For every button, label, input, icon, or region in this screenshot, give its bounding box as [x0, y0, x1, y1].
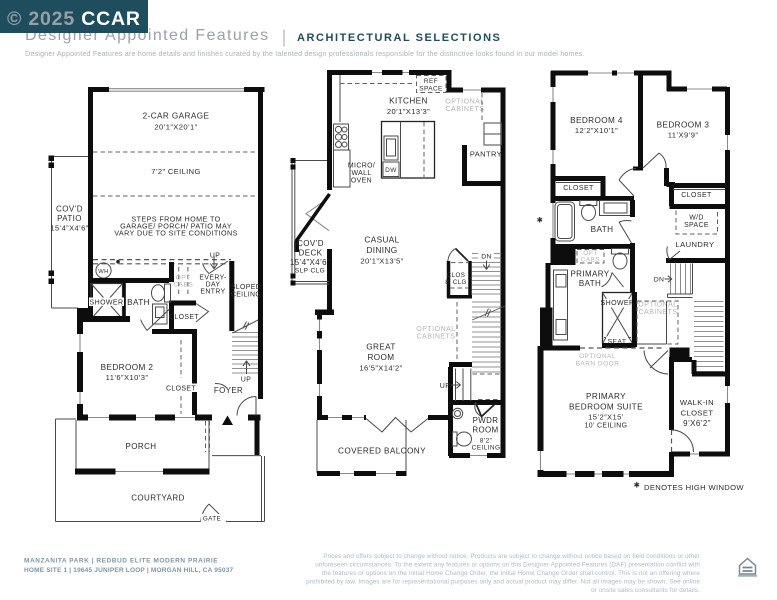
svg-text:8’2”: 8’2”	[480, 438, 492, 445]
svg-text:or onsite sales consultants fo: or onsite sales consultants for details.	[591, 587, 700, 594]
svg-text:DW: DW	[385, 167, 397, 174]
svg-text:DECK: DECK	[299, 249, 323, 258]
svg-text:16’5”X14’2”: 16’5”X14’2”	[359, 364, 402, 373]
svg-text:FOYER: FOYER	[214, 386, 243, 395]
svg-text:prohibited by law. Images are: prohibited by law. Images are for repres…	[306, 579, 700, 586]
svg-text:OPT: OPT	[176, 275, 191, 282]
svg-text:BEDROOM 2: BEDROOM 2	[101, 363, 154, 372]
svg-text:COVERED BALCONY: COVERED BALCONY	[338, 447, 426, 456]
svg-text:WH: WH	[98, 269, 108, 275]
svg-text:ARCHITECTURAL SELECTIONS: ARCHITECTURAL SELECTIONS	[297, 32, 501, 44]
svg-text:20’1”X13’3”: 20’1”X13’3”	[387, 107, 430, 116]
svg-text:BEDROOM 3: BEDROOM 3	[657, 121, 710, 130]
svg-text:BEDROOM 4: BEDROOM 4	[570, 116, 623, 125]
svg-text:Designer Appointed Features ar: Designer Appointed Features are home det…	[25, 50, 585, 58]
svg-text:LAUNDRY: LAUNDRY	[676, 240, 715, 249]
svg-text:VARY DUE TO SITE CONDITIONS: VARY DUE TO SITE CONDITIONS	[114, 229, 238, 238]
svg-text:CLOSET: CLOSET	[166, 386, 196, 393]
svg-text:OPTIONAL: OPTIONAL	[445, 99, 484, 106]
svg-text:CABS: CABS	[173, 282, 193, 289]
svg-text:SPACE: SPACE	[419, 86, 443, 93]
svg-text:15’4”X4’6”: 15’4”X4’6”	[50, 224, 88, 233]
svg-text:PWDR: PWDR	[473, 416, 499, 425]
svg-text:BATH: BATH	[127, 298, 150, 307]
svg-text:20’1”X13’5”: 20’1”X13’5”	[360, 257, 403, 266]
svg-text:ENTRY: ENTRY	[200, 289, 225, 296]
svg-text:UP: UP	[210, 253, 220, 260]
svg-text:7’2” CEILING: 7’2” CEILING	[151, 167, 200, 176]
svg-text:BATH: BATH	[591, 225, 614, 234]
svg-text:PORCH: PORCH	[126, 442, 157, 451]
svg-text:CABINETS: CABINETS	[638, 309, 677, 316]
svg-text:MICRO/: MICRO/	[348, 163, 375, 170]
svg-text:CABS: CABS	[581, 257, 600, 264]
svg-text:PATIO: PATIO	[57, 214, 82, 223]
svg-text:WALL: WALL	[351, 170, 371, 177]
svg-text:DAY: DAY	[206, 282, 221, 289]
svg-text:ROOM: ROOM	[472, 426, 498, 435]
svg-text:CLOSET: CLOSET	[681, 409, 714, 418]
svg-text:WALK-IN: WALK-IN	[680, 398, 714, 407]
svg-text:8’ CLG: 8’ CLG	[445, 279, 466, 286]
svg-text:SLOPED: SLOPED	[231, 284, 261, 291]
svg-text:11’6”X10’3”: 11’6”X10’3”	[106, 373, 149, 382]
svg-text:OPTIONAL: OPTIONAL	[416, 326, 455, 333]
svg-text:EVERY-: EVERY-	[199, 275, 226, 282]
svg-text:CABINETS: CABINETS	[416, 334, 455, 341]
svg-text:CABINETS: CABINETS	[445, 106, 484, 113]
svg-text:CLOSET: CLOSET	[681, 192, 712, 199]
svg-text:SPACE: SPACE	[684, 222, 709, 229]
svg-text:COV’D: COV’D	[297, 239, 324, 248]
svg-text:W/D: W/D	[689, 215, 704, 222]
svg-text:DENOTES HIGH WINDOW: DENOTES HIGH WINDOW	[644, 483, 744, 492]
svg-text:10’ CEILING: 10’ CEILING	[585, 423, 628, 430]
svg-text:COV’D: COV’D	[56, 205, 83, 214]
svg-text:DN: DN	[654, 277, 665, 284]
svg-text:UP: UP	[241, 377, 251, 384]
svg-text:PRIMARY: PRIMARY	[586, 392, 626, 401]
svg-text:OVEN: OVEN	[351, 178, 372, 185]
svg-text:CLOSET: CLOSET	[563, 185, 594, 192]
svg-text:GATE: GATE	[203, 516, 221, 523]
svg-text:PANTRY: PANTRY	[470, 150, 502, 159]
svg-text:SHOWER: SHOWER	[601, 300, 635, 307]
svg-text:GREAT: GREAT	[366, 343, 396, 352]
svg-text:CASUAL: CASUAL	[364, 236, 399, 245]
svg-text:12’2”X10’1”: 12’2”X10’1”	[575, 126, 618, 135]
svg-text:DINING: DINING	[366, 246, 397, 255]
svg-text:BEDROOM SUITE: BEDROOM SUITE	[569, 403, 643, 412]
svg-text:9’X6’2”: 9’X6’2”	[683, 419, 711, 428]
svg-text:KITCHEN: KITCHEN	[389, 97, 428, 106]
svg-text:15’4”X4’6”: 15’4”X4’6”	[290, 258, 330, 267]
svg-text:MANZANITA PARK | REDBUD ELITE: MANZANITA PARK | REDBUD ELITE MODERN PRA…	[24, 558, 218, 565]
svg-text:2-CAR GARAGE: 2-CAR GARAGE	[143, 112, 210, 121]
svg-text:© 2025 CCAR: © 2025 CCAR	[7, 8, 141, 30]
svg-text:the features or options on the: the features or options on the Initial H…	[322, 570, 700, 577]
svg-text:CLOSET: CLOSET	[169, 314, 199, 321]
svg-text:PRIMARY: PRIMARY	[570, 270, 609, 279]
svg-text:20’1”X20’1”: 20’1”X20’1”	[154, 123, 197, 132]
svg-text:SHOWER: SHOWER	[90, 300, 124, 307]
svg-text:UP: UP	[440, 383, 451, 390]
svg-text:Prices and offers subject to c: Prices and offers subject to change with…	[323, 553, 700, 560]
svg-text:15’2”X15’: 15’2”X15’	[588, 413, 624, 422]
svg-text:unforeseen circumstances. To t: unforeseen circumstances. To the extent …	[315, 562, 700, 569]
svg-text:DN: DN	[481, 254, 492, 261]
svg-text:OPTIONAL: OPTIONAL	[579, 353, 616, 360]
svg-text:✱: ✱	[537, 216, 544, 225]
svg-text:11’X9’9”: 11’X9’9”	[668, 130, 699, 139]
svg-text:BATH: BATH	[579, 279, 601, 288]
svg-text:REF: REF	[424, 78, 438, 85]
svg-text:CLOS: CLOS	[447, 272, 465, 279]
svg-text:✱: ✱	[634, 481, 641, 490]
svg-text:ROOM: ROOM	[367, 353, 394, 362]
svg-text:BARN DOOR: BARN DOOR	[576, 361, 620, 368]
svg-text:CEILING: CEILING	[472, 445, 501, 452]
svg-text:SLP CLG: SLP CLG	[295, 268, 325, 275]
svg-text:HOME SITE 1 | 19645 JUNIPER LO: HOME SITE 1 | 19645 JUNIPER LOOP | MORGA…	[24, 567, 234, 574]
svg-text:OPTIONAL: OPTIONAL	[638, 302, 677, 309]
svg-text:CEILING: CEILING	[231, 292, 261, 299]
svg-text:COURTYARD: COURTYARD	[131, 494, 185, 503]
